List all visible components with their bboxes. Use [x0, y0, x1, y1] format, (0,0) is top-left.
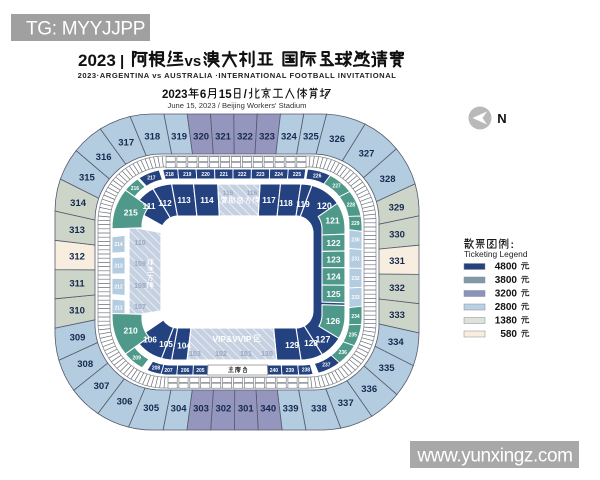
svg-text:VIP&VVIP: VIP&VVIP — [212, 334, 252, 344]
svg-text:15: 15 — [219, 89, 232, 101]
svg-text:117: 117 — [262, 195, 276, 205]
svg-text:125: 125 — [326, 289, 340, 299]
svg-text:227: 227 — [332, 184, 341, 190]
svg-text:226: 226 — [313, 174, 322, 180]
svg-text:211: 211 — [114, 306, 122, 312]
svg-text:124: 124 — [326, 271, 340, 281]
svg-text:208: 208 — [152, 366, 161, 372]
svg-text:235: 235 — [349, 332, 358, 338]
svg-text:238: 238 — [302, 368, 311, 374]
svg-text:112: 112 — [158, 198, 172, 208]
svg-text:113: 113 — [177, 195, 191, 205]
svg-text:120: 120 — [317, 201, 332, 211]
svg-text:101: 101 — [240, 351, 252, 358]
svg-text:339: 339 — [283, 403, 299, 414]
svg-text:337: 337 — [338, 398, 354, 409]
svg-text:318: 318 — [144, 132, 160, 143]
svg-text:236: 236 — [339, 350, 348, 356]
svg-text:304: 304 — [171, 403, 188, 414]
svg-text:314: 314 — [70, 198, 87, 209]
svg-text:301: 301 — [238, 403, 255, 414]
svg-text:2800: 2800 — [495, 302, 518, 313]
svg-text:324: 324 — [281, 131, 298, 142]
svg-text:6: 6 — [200, 89, 206, 101]
svg-text:334: 334 — [388, 337, 405, 348]
svg-text:105: 105 — [159, 339, 173, 349]
svg-text:207: 207 — [164, 368, 173, 374]
svg-text:305: 305 — [143, 403, 160, 414]
svg-text:332: 332 — [389, 283, 405, 294]
svg-text:1380: 1380 — [495, 316, 518, 327]
svg-text:104: 104 — [177, 341, 191, 351]
svg-text:311: 311 — [69, 279, 85, 290]
svg-text:240: 240 — [270, 368, 279, 374]
svg-text:328: 328 — [380, 174, 396, 185]
svg-text:116: 116 — [247, 190, 258, 197]
svg-text:114: 114 — [200, 195, 214, 205]
svg-text:115: 115 — [223, 190, 234, 197]
svg-text:TG: MYYJJPP: TG: MYYJJPP — [26, 19, 145, 40]
svg-text:219: 219 — [183, 172, 192, 178]
svg-text:214: 214 — [114, 242, 123, 248]
svg-text:310: 310 — [69, 306, 85, 317]
svg-text:302: 302 — [215, 403, 231, 414]
svg-text:130: 130 — [261, 351, 273, 358]
svg-text:216: 216 — [131, 186, 140, 192]
svg-text:303: 303 — [193, 403, 209, 414]
svg-text:326: 326 — [329, 134, 345, 145]
svg-text:338: 338 — [311, 403, 327, 414]
svg-text:108: 108 — [134, 283, 146, 290]
svg-text:307: 307 — [94, 381, 110, 392]
svg-text:239: 239 — [286, 368, 295, 374]
svg-text:306: 306 — [117, 397, 133, 408]
svg-text:106: 106 — [143, 335, 157, 345]
svg-text:222: 222 — [238, 172, 247, 178]
svg-text:215: 215 — [124, 208, 138, 218]
svg-text:230: 230 — [351, 238, 360, 244]
svg-text:2023·ARGENTINA vs AUSTRALIA ·I: 2023·ARGENTINA vs AUSTRALIA ·INTERNATION… — [78, 71, 397, 80]
svg-text:217: 217 — [147, 176, 156, 182]
svg-text:3800: 3800 — [495, 275, 518, 286]
svg-text:126: 126 — [326, 316, 340, 326]
svg-text:221: 221 — [220, 172, 229, 178]
svg-text:329: 329 — [389, 203, 405, 214]
svg-text:vs: vs — [185, 53, 202, 70]
svg-text:103: 103 — [189, 351, 201, 358]
svg-text:340: 340 — [260, 403, 276, 414]
svg-text:224: 224 — [275, 172, 284, 178]
svg-text:N: N — [497, 111, 506, 126]
svg-text:209: 209 — [133, 355, 142, 361]
svg-text:233: 233 — [351, 295, 360, 301]
svg-text:109: 109 — [134, 261, 146, 268]
svg-text:331: 331 — [389, 256, 406, 267]
svg-text:231: 231 — [351, 257, 360, 263]
svg-text:229: 229 — [351, 221, 360, 227]
svg-text:313: 313 — [69, 225, 85, 236]
svg-text:June 15, 2023 / Beijing Worker: June 15, 2023 / Beijing Workers' Stadium — [168, 101, 307, 110]
svg-text:121: 121 — [325, 216, 339, 226]
svg-text:www.yunxingz.com: www.yunxingz.com — [416, 446, 572, 467]
svg-text:218: 218 — [165, 172, 174, 178]
svg-text:321: 321 — [215, 131, 232, 142]
svg-text:223: 223 — [256, 172, 265, 178]
svg-text:333: 333 — [389, 310, 405, 321]
svg-text:122: 122 — [326, 238, 340, 248]
svg-text:220: 220 — [201, 172, 210, 178]
svg-text:3200: 3200 — [495, 289, 518, 300]
svg-text:580: 580 — [500, 329, 517, 340]
svg-text:312: 312 — [69, 252, 85, 263]
svg-text:225: 225 — [293, 172, 302, 178]
svg-text:232: 232 — [351, 276, 360, 282]
svg-text:327: 327 — [359, 149, 375, 160]
svg-text:118: 118 — [279, 198, 293, 208]
svg-text:323: 323 — [259, 131, 275, 142]
svg-text:316: 316 — [96, 152, 112, 163]
svg-text:123: 123 — [326, 254, 340, 264]
svg-text:107: 107 — [134, 304, 146, 311]
svg-text:237: 237 — [322, 363, 331, 369]
svg-text:2023: 2023 — [78, 51, 116, 70]
svg-text:308: 308 — [77, 359, 93, 370]
svg-text:315: 315 — [79, 173, 96, 184]
svg-text:320: 320 — [193, 131, 209, 142]
svg-text:317: 317 — [118, 138, 134, 149]
svg-text:206: 206 — [181, 368, 190, 374]
svg-text:111: 111 — [143, 201, 156, 211]
svg-text:210: 210 — [124, 326, 138, 336]
svg-text:234: 234 — [351, 314, 360, 320]
svg-text:129: 129 — [285, 340, 299, 350]
svg-text:205: 205 — [196, 368, 205, 374]
svg-text:319: 319 — [171, 131, 187, 142]
svg-text:330: 330 — [389, 229, 405, 240]
svg-text:336: 336 — [361, 384, 377, 395]
svg-text:228: 228 — [347, 202, 356, 208]
svg-text:212: 212 — [114, 285, 123, 291]
svg-text:110: 110 — [134, 240, 145, 247]
svg-text:4800: 4800 — [495, 262, 518, 273]
svg-text:|: | — [120, 53, 124, 70]
svg-text:2023: 2023 — [162, 89, 188, 101]
svg-text:127: 127 — [315, 334, 330, 344]
svg-text:322: 322 — [237, 131, 253, 142]
svg-text:119: 119 — [296, 199, 310, 209]
svg-text:309: 309 — [70, 332, 86, 343]
svg-text:102: 102 — [215, 351, 227, 358]
svg-text:335: 335 — [379, 363, 396, 374]
svg-text:Ticketing Legend: Ticketing Legend — [464, 249, 528, 259]
svg-text:325: 325 — [303, 131, 320, 142]
svg-text:213: 213 — [114, 263, 123, 269]
